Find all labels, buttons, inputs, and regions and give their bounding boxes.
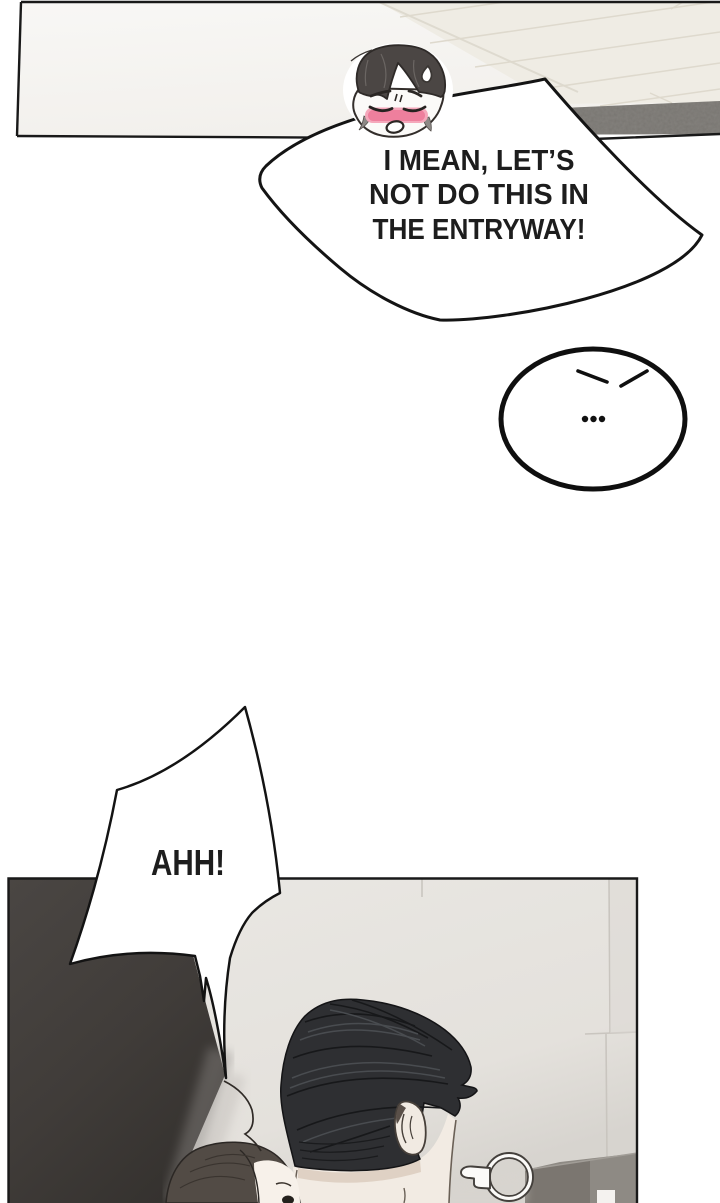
svg-text:THE ENTRYWAY!: THE ENTRYWAY! xyxy=(373,214,586,246)
svg-text:NOT DO THIS IN: NOT DO THIS IN xyxy=(369,179,589,211)
svg-text:AHH!: AHH! xyxy=(151,842,225,883)
svg-text:I MEAN, LET’S: I MEAN, LET’S xyxy=(384,145,575,177)
